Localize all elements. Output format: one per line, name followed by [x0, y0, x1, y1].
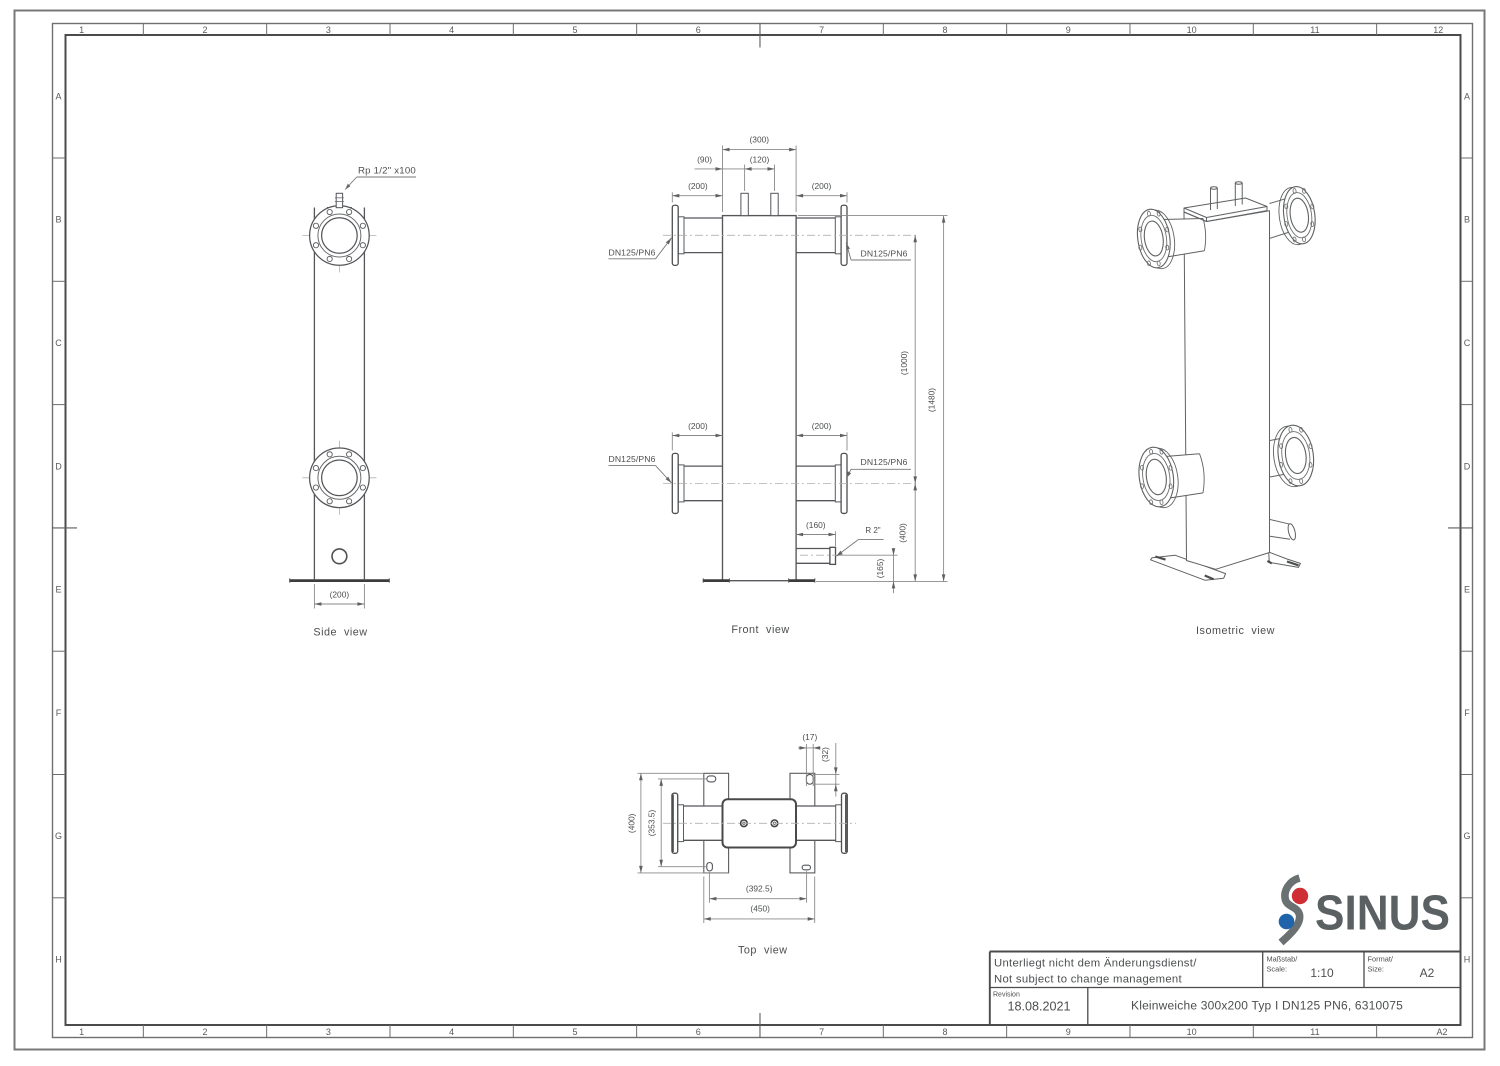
- svg-text:9: 9: [1066, 25, 1071, 35]
- svg-text:C: C: [1464, 338, 1471, 348]
- svg-text:C: C: [55, 338, 62, 348]
- svg-text:G: G: [1463, 831, 1470, 841]
- svg-text:A: A: [55, 91, 61, 101]
- svg-text:DN125/PN6: DN125/PN6: [861, 458, 908, 467]
- svg-text:DN125/PN6: DN125/PN6: [609, 249, 656, 258]
- svg-text:Format/: Format/: [1368, 955, 1394, 964]
- svg-text:G: G: [55, 831, 62, 841]
- svg-text:(32): (32): [820, 747, 830, 762]
- svg-text:(200): (200): [812, 181, 832, 191]
- svg-text:6: 6: [696, 1027, 701, 1037]
- svg-text:2: 2: [202, 25, 207, 35]
- svg-text:(300): (300): [750, 135, 770, 145]
- svg-text:(160): (160): [806, 520, 826, 530]
- svg-text:Not subject to change manageme: Not subject to change management: [994, 974, 1183, 986]
- svg-text:9: 9: [1066, 1027, 1071, 1037]
- svg-text:4: 4: [449, 1027, 454, 1037]
- svg-text:Top view: Top view: [738, 945, 788, 957]
- svg-text:A2: A2: [1436, 1027, 1447, 1037]
- svg-text:E: E: [1464, 585, 1470, 595]
- svg-text:7: 7: [819, 1027, 824, 1037]
- svg-text:(400): (400): [898, 523, 908, 543]
- svg-text:Scale:: Scale:: [1267, 965, 1288, 974]
- svg-text:(120): (120): [750, 154, 770, 164]
- svg-text:8: 8: [942, 25, 947, 35]
- svg-text:8: 8: [942, 1027, 947, 1037]
- svg-text:(400): (400): [626, 813, 636, 833]
- svg-text:(353.5): (353.5): [647, 810, 657, 837]
- svg-text:1:10: 1:10: [1310, 966, 1334, 980]
- svg-text:6: 6: [696, 25, 701, 35]
- svg-text:Side view: Side view: [313, 627, 367, 639]
- svg-text:Isometric view: Isometric view: [1196, 625, 1275, 637]
- svg-text:Front view: Front view: [731, 624, 789, 636]
- svg-text:1: 1: [79, 25, 84, 35]
- svg-text:11: 11: [1310, 25, 1319, 35]
- svg-text:10: 10: [1187, 25, 1197, 35]
- svg-text:5: 5: [572, 25, 577, 35]
- svg-text:2: 2: [202, 1027, 207, 1037]
- svg-text:D: D: [55, 461, 62, 471]
- svg-text:Unterliegt nicht dem Änderungs: Unterliegt nicht dem Änderungsdienst/: [994, 958, 1197, 970]
- svg-text:3: 3: [326, 25, 331, 35]
- svg-text:(200): (200): [688, 181, 708, 191]
- svg-text:7: 7: [819, 25, 824, 35]
- svg-text:D: D: [1464, 461, 1471, 471]
- svg-text:F: F: [56, 708, 62, 718]
- svg-text:(90): (90): [697, 154, 712, 164]
- svg-text:H: H: [55, 954, 62, 964]
- svg-text:B: B: [1464, 215, 1470, 225]
- svg-text:11: 11: [1310, 1027, 1319, 1037]
- svg-text:E: E: [55, 585, 61, 595]
- svg-text:10: 10: [1187, 1027, 1197, 1037]
- svg-text:F: F: [1464, 708, 1470, 718]
- svg-text:H: H: [1464, 954, 1471, 964]
- svg-text:Maßstab/: Maßstab/: [1267, 955, 1299, 964]
- svg-text:(165): (165): [875, 559, 885, 579]
- svg-text:DN125/PN6: DN125/PN6: [861, 249, 908, 258]
- svg-text:(450): (450): [750, 903, 770, 913]
- svg-text:1: 1: [79, 1027, 84, 1037]
- svg-text:A: A: [1464, 91, 1470, 101]
- svg-text:18.08.2021: 18.08.2021: [1007, 1000, 1070, 1014]
- svg-text:Revision: Revision: [993, 992, 1020, 999]
- svg-text:(200): (200): [688, 421, 708, 431]
- svg-text:(1000): (1000): [899, 351, 909, 375]
- svg-text:4: 4: [449, 25, 454, 35]
- svg-text:Rp 1/2" x100: Rp 1/2" x100: [358, 165, 416, 175]
- svg-text:12: 12: [1433, 25, 1443, 35]
- svg-text:R 2": R 2": [865, 526, 880, 535]
- svg-text:(200): (200): [330, 590, 350, 600]
- svg-text:SINUS: SINUS: [1315, 887, 1450, 941]
- svg-text:(1480): (1480): [927, 388, 937, 412]
- svg-text:A2: A2: [1420, 966, 1435, 980]
- svg-text:DN125/PN6: DN125/PN6: [609, 455, 656, 464]
- svg-text:(17): (17): [802, 732, 817, 742]
- svg-text:5: 5: [572, 1027, 577, 1037]
- svg-text:Size:: Size:: [1368, 965, 1384, 974]
- svg-text:3: 3: [326, 1027, 331, 1037]
- svg-text:(200): (200): [812, 421, 832, 431]
- svg-text:(392.5): (392.5): [746, 883, 773, 893]
- svg-text:Kleinweiche 300x200 Typ I DN12: Kleinweiche 300x200 Typ I DN125 PN6, 631…: [1131, 999, 1403, 1013]
- svg-text:B: B: [55, 215, 61, 225]
